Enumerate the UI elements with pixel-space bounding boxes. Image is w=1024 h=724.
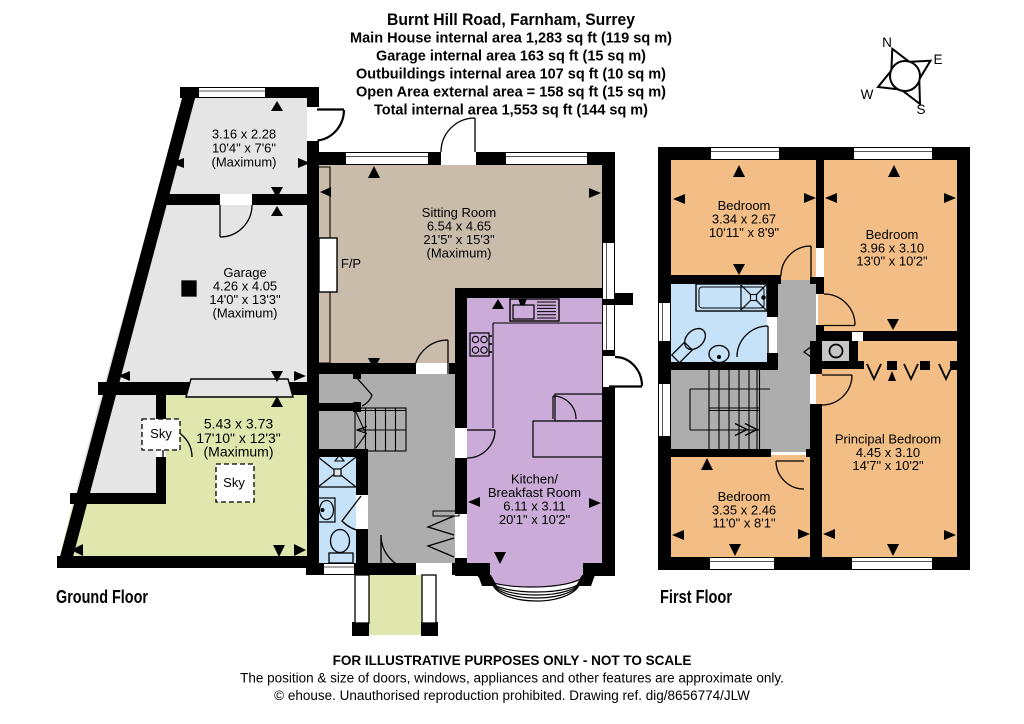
svg-text:Sky: Sky [223, 475, 245, 490]
svg-text:First Floor: First Floor [660, 587, 732, 607]
svg-text:10'11" x 8'9": 10'11" x 8'9" [709, 225, 780, 240]
svg-text:W: W [861, 87, 874, 102]
svg-text:(Maximum): (Maximum) [213, 306, 278, 321]
svg-text:F/P: F/P [341, 256, 361, 271]
svg-text:Main House internal area 1,283: Main House internal area 1,283 sq ft (11… [350, 30, 672, 47]
svg-text:(Maximum): (Maximum) [427, 246, 492, 261]
svg-text:(Maximum): (Maximum) [212, 155, 277, 170]
svg-text:20'1" x 10'2": 20'1" x 10'2" [499, 512, 571, 527]
svg-text:E: E [933, 52, 942, 67]
svg-text:3.16 x 2.28: 3.16 x 2.28 [212, 127, 276, 142]
svg-text:S: S [916, 102, 925, 117]
svg-text:Outbuildings internal area 107: Outbuildings internal area 107 sq ft (10… [356, 66, 666, 83]
svg-text:13'0" x 10'2": 13'0" x 10'2" [856, 254, 928, 269]
svg-text:10'4" x 7'6": 10'4" x 7'6" [212, 141, 276, 156]
svg-text:14'7" x 10'2": 14'7" x 10'2" [852, 458, 924, 473]
svg-text:(Maximum): (Maximum) [204, 444, 274, 460]
svg-text:FOR ILLUSTRATIVE PURPOSES ONLY: FOR ILLUSTRATIVE PURPOSES ONLY - NOT TO … [333, 653, 692, 668]
svg-text:The position & size of doors,: The position & size of doors, windows, a… [240, 671, 784, 686]
svg-text:Open Area external area = 158: Open Area external area = 158 sq ft (15 … [356, 84, 666, 101]
svg-text:Burnt Hill Road, Farnham, Surr: Burnt Hill Road, Farnham, Surrey [387, 11, 636, 29]
svg-text:11'0" x 8'1": 11'0" x 8'1" [712, 516, 775, 531]
svg-text:Ground Floor: Ground Floor [56, 587, 148, 607]
svg-text:N: N [882, 35, 892, 50]
svg-text:© ehouse. Unauthorised reprodu: © ehouse. Unauthorised reproduction proh… [274, 688, 750, 703]
svg-text:Garage internal area 163 sq ft: Garage internal area 163 sq ft (15 sq m) [376, 48, 646, 65]
svg-text:Total internal area 1,553 sq f: Total internal area 1,553 sq ft (144 sq … [374, 102, 648, 119]
svg-text:Sky: Sky [150, 426, 172, 441]
